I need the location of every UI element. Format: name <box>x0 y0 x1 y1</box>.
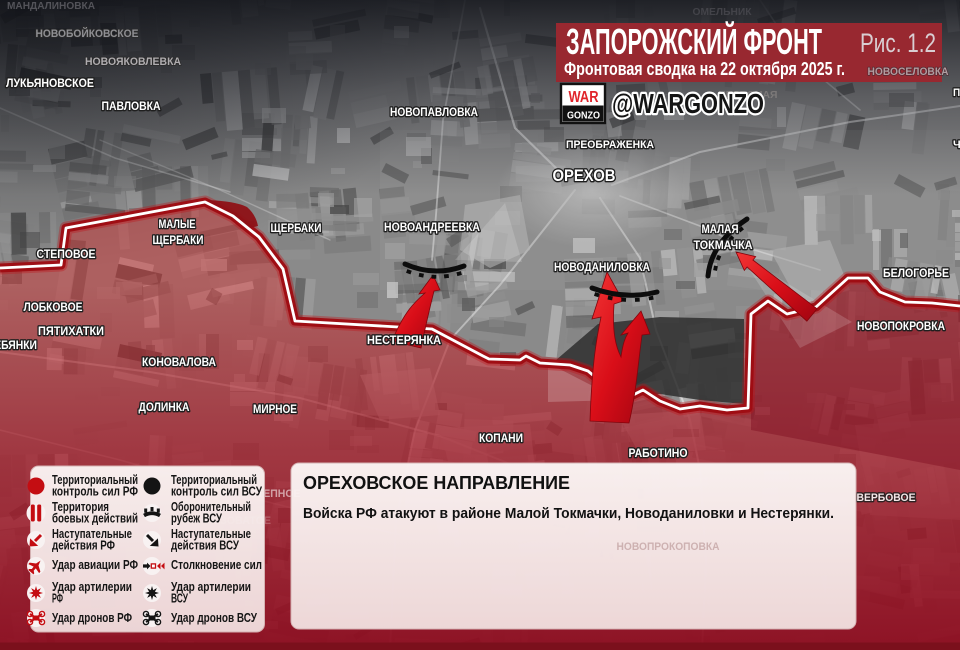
svg-text:@WARGONZO: @WARGONZO <box>612 88 764 119</box>
svg-text:боевых действий: боевых действий <box>52 512 138 526</box>
svg-text:ЧЕ: ЧЕ <box>953 139 960 151</box>
svg-text:НОВОБОЙКОВСКОЕ: НОВОБОЙКОВСКОЕ <box>36 27 139 40</box>
svg-text:GONZO: GONZO <box>567 110 600 122</box>
svg-text:Войска РФ атакуют в районе Мал: Войска РФ атакуют в районе Малой Токмачк… <box>303 506 834 522</box>
svg-text:МИРНОЕ: МИРНОЕ <box>253 404 297 416</box>
svg-text:Столкновение сил: Столкновение сил <box>171 558 262 572</box>
svg-text:РФ: РФ <box>52 592 63 606</box>
svg-text:НОВОСЕЛОВКА: НОВОСЕЛОВКА <box>868 66 949 78</box>
svg-text:ПРЕОБРАЖЕНКА: ПРЕОБРАЖЕНКА <box>566 139 654 151</box>
svg-text:КОНОВАЛОВА: КОНОВАЛОВА <box>142 357 216 369</box>
svg-text:НОВОПРОКОПОВКА: НОВОПРОКОПОВКА <box>617 541 720 553</box>
svg-text:Удар артилерии: Удар артилерии <box>52 580 132 594</box>
svg-text:РАБОТИНО: РАБОТИНО <box>629 448 688 460</box>
svg-text:действия РФ: действия РФ <box>52 539 115 553</box>
svg-text:НОВОАНДРЕЕВКА: НОВОАНДРЕЕВКА <box>384 222 480 234</box>
svg-text:БЕЛОГОРЬЕ: БЕЛОГОРЬЕ <box>883 268 949 280</box>
svg-text:КОПАНИ: КОПАНИ <box>479 433 523 445</box>
svg-text:ОРЕХОВСКОЕ НАПРАВЛЕНИЕ: ОРЕХОВСКОЕ НАПРАВЛЕНИЕ <box>303 472 570 493</box>
svg-text:ПЯТИХАТКИ: ПЯТИХАТКИ <box>38 326 104 338</box>
svg-text:ВСУ: ВСУ <box>171 592 188 606</box>
svg-text:действия ВСУ: действия ВСУ <box>171 539 239 553</box>
svg-text:ДОЛИНКА: ДОЛИНКА <box>139 402 190 414</box>
svg-text:СТЕПОВОЕ: СТЕПОВОЕ <box>37 249 96 261</box>
svg-text:МАНДАЛИНОВКА: МАНДАЛИНОВКА <box>7 0 95 12</box>
svg-text:контроль сил ВСУ: контроль сил ВСУ <box>171 485 262 499</box>
svg-text:ОМЕЛЬНИК: ОМЕЛЬНИК <box>693 6 753 18</box>
svg-text:ЖЕРЕБЯНКИ: ЖЕРЕБЯНКИ <box>0 340 37 352</box>
svg-text:ПО: ПО <box>953 87 960 99</box>
svg-text:Удар дронов ВСУ: Удар дронов ВСУ <box>171 611 257 625</box>
svg-text:НОВОПОКРОВКА: НОВОПОКРОВКА <box>857 321 945 333</box>
svg-text:НЕСТЕРЯНКА: НЕСТЕРЯНКА <box>367 335 441 347</box>
svg-text:Фронтовая сводка на 22 октября: Фронтовая сводка на 22 октября 2025 г. <box>564 58 845 79</box>
svg-text:ТОКМАЧКА: ТОКМАЧКА <box>694 240 753 252</box>
svg-text:ОРЕХОВ: ОРЕХОВ <box>553 166 616 185</box>
svg-text:рубеж ВСУ: рубеж ВСУ <box>171 512 222 526</box>
svg-text:ПАВЛОВКА: ПАВЛОВКА <box>102 101 161 113</box>
svg-text:Удар авиации РФ: Удар авиации РФ <box>52 558 138 572</box>
svg-text:ЛОБКОВОЕ: ЛОБКОВОЕ <box>24 302 83 314</box>
svg-text:контроль сил РФ: контроль сил РФ <box>52 485 138 499</box>
svg-text:ЗАПОРОЖСКИЙ ФРОНТ: ЗАПОРОЖСКИЙ ФРОНТ <box>566 20 822 62</box>
svg-text:ВЕРБОВОЕ: ВЕРБОВОЕ <box>857 492 916 504</box>
svg-text:НОВОДАНИЛОВКА: НОВОДАНИЛОВКА <box>554 262 650 274</box>
svg-text:ЩЕРБАКИ: ЩЕРБАКИ <box>153 235 204 247</box>
svg-text:МАЛАЯ: МАЛАЯ <box>702 224 739 236</box>
svg-text:WAR: WAR <box>569 89 599 106</box>
svg-text:ЛУКЬЯНОВСКОЕ: ЛУКЬЯНОВСКОЕ <box>6 78 94 90</box>
svg-text:НОВОПАВЛОВКА: НОВОПАВЛОВКА <box>390 107 478 119</box>
svg-text:МАЛЫЕ: МАЛЫЕ <box>159 219 196 231</box>
svg-text:ЩЕРБАКИ: ЩЕРБАКИ <box>271 223 322 235</box>
svg-text:НОВОЯКОВЛЕВКА: НОВОЯКОВЛЕВКА <box>85 56 181 68</box>
svg-text:Рис. 1.2: Рис. 1.2 <box>860 28 936 58</box>
svg-text:Удар дронов РФ: Удар дронов РФ <box>52 611 132 625</box>
